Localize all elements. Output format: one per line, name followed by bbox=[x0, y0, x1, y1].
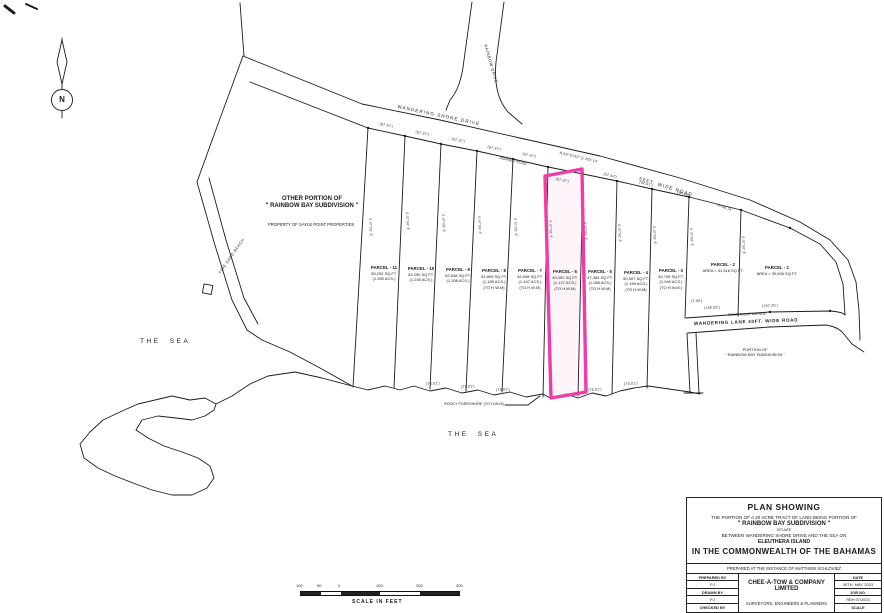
lane-dim: (7.09') bbox=[691, 299, 702, 303]
commonwealth-line: IN THE COMMONWEALTH OF THE BAHAMAS bbox=[687, 547, 881, 556]
scalebar-tick-label: 300 bbox=[456, 583, 463, 588]
the-sea-label-south: THE SEA bbox=[448, 431, 498, 438]
rear-dim: (75.01') bbox=[496, 387, 510, 392]
rear-dim: (75.01') bbox=[588, 387, 602, 392]
drawn-by-label: DRAWN BY bbox=[687, 589, 738, 596]
other-portion-line2: " RAINBOW BAY SUBDIVISION " bbox=[252, 203, 372, 210]
structure-square bbox=[202, 284, 212, 294]
credits-left-column: PREPARED BY P.J DRAWN BY P.J CHECKED BY bbox=[687, 574, 739, 612]
foreshore-leader-line bbox=[505, 396, 540, 405]
checked-by-label: CHECKED BY bbox=[687, 604, 738, 611]
company-subtitle: SURVEYORS, ENGINEERS & PLANNERS bbox=[739, 601, 834, 606]
west-boundary-line bbox=[197, 56, 243, 182]
north-arrow bbox=[52, 38, 73, 118]
company-name: CHEE-A-TOW & COMPANY LIMITED bbox=[739, 580, 834, 592]
scale-bar-segment bbox=[420, 592, 460, 595]
rear-dim: (75.01') bbox=[624, 381, 638, 386]
other-portion-label: OTHER PORTION OF " RAINBOW BAY SUBDIVISI… bbox=[252, 196, 372, 210]
bearing-label: S 07°08' E bbox=[476, 216, 481, 234]
parcel-1-label: PARCEL - 1 AREA = 30,506 SQ.FT. bbox=[744, 265, 810, 276]
scalebar-tick-label: 0 bbox=[338, 583, 340, 588]
scan-artifact bbox=[26, 4, 37, 9]
title-block-credits: PREPARED BY P.J DRAWN BY P.J CHECKED BY … bbox=[687, 574, 881, 612]
rear-dim: (75.01') bbox=[426, 381, 440, 386]
company-cell: CHEE-A-TOW & COMPANY LIMITED SURVEYORS, … bbox=[739, 574, 835, 612]
scan-artifact bbox=[5, 6, 14, 13]
scalebar-tick-label: 50 bbox=[317, 583, 321, 588]
lane-end-lot-lines bbox=[684, 333, 703, 393]
prepared-by-label: PREPARED BY bbox=[687, 574, 738, 581]
portion-of-line2: " RAINBOW BAY SUBDIVISION " bbox=[700, 353, 810, 358]
job-no-value: RBH 07/2023 bbox=[835, 596, 881, 603]
scale-bar-segment bbox=[341, 592, 381, 595]
date-label: DATE bbox=[835, 574, 881, 581]
portion-of-label: PORTION OF " RAINBOW BAY SUBDIVISION " bbox=[700, 348, 810, 357]
bearing-label: S 07°08' E bbox=[367, 218, 372, 236]
parcel-boundary bbox=[394, 136, 405, 388]
island-name: ELEUTHERA ISLAND bbox=[687, 539, 881, 545]
foreshore-label: ROCKY FORESHORE (TO H.W.M) bbox=[444, 402, 504, 406]
the-sea-label-west: THE SEA bbox=[140, 338, 190, 345]
bearing-label: S 07°08' E bbox=[547, 220, 552, 238]
lane-dim: (105.00') bbox=[704, 305, 720, 310]
scale-bar-segment bbox=[380, 592, 420, 595]
credits-right-column: DATE 30TH, MAY, 2023 JOB NO. RBH 07/2023… bbox=[835, 574, 881, 612]
bearing-label: S 07°08' E bbox=[616, 224, 621, 242]
bearing-label: S 07°08' E bbox=[651, 226, 656, 244]
coastline-west bbox=[247, 330, 352, 386]
parcel-boundary bbox=[353, 128, 368, 387]
rear-dim: (75.01') bbox=[461, 384, 475, 389]
prepared-by-value: P.J bbox=[687, 581, 738, 588]
bearing-label: S 07°08' E bbox=[512, 218, 517, 236]
bearing-label: S 07°08' E bbox=[582, 222, 587, 240]
boundary-tie-line bbox=[240, 3, 244, 56]
scale-label: SCALE bbox=[835, 604, 881, 611]
rocky-foreshore-line bbox=[352, 386, 700, 399]
scale-bar-segment bbox=[301, 592, 321, 595]
scale-bar-segment bbox=[321, 592, 341, 595]
parcel-boundary bbox=[685, 197, 689, 318]
other-portion-line1: OTHER PORTION OF bbox=[252, 196, 372, 203]
lane-dim: (157.25') bbox=[762, 303, 778, 308]
date-value: 30TH, MAY, 2023 bbox=[835, 581, 881, 588]
scale-caption: SCALE IN FEET bbox=[352, 600, 403, 606]
bearing-label: S 07°08' E bbox=[404, 212, 409, 230]
property-of-label: PROPERTY OF SAYLE POINT PROPERTIES bbox=[268, 223, 354, 228]
rainbow-drive-east-edge bbox=[496, 2, 523, 124]
plan-showing-title: PLAN SHOWING bbox=[687, 502, 881, 512]
beach-outer-line bbox=[197, 182, 247, 330]
title-block-heading: PLAN SHOWING THE PORTION OF A 20 ACRE TR… bbox=[687, 498, 881, 564]
rainbow-drive-west-edge bbox=[446, 2, 472, 110]
drawn-by-value: P.J bbox=[687, 596, 738, 603]
survey-plan-page: N WANDERING SHORE DRIVE ASPHALT ROAD 50F… bbox=[0, 0, 884, 613]
scalebar-tick-label: 200 bbox=[416, 583, 423, 588]
scalebar-tick-label: 100 bbox=[296, 583, 303, 588]
bearing-label: S 07°08' E bbox=[740, 236, 745, 254]
title-block: PLAN SHOWING THE PORTION OF A 20 ACRE TR… bbox=[686, 497, 882, 613]
scalebar-tick-label: 100 bbox=[376, 583, 383, 588]
north-arrow-label: N bbox=[57, 95, 68, 104]
coastline-to-pond bbox=[216, 372, 352, 404]
subdivision-name: " RAINBOW BAY SUBDIVISION " bbox=[687, 521, 881, 527]
prepared-instance-line: PREPARED AT THE INSTANCE OF MATTHEW SCHL… bbox=[687, 564, 881, 574]
scale-bar bbox=[300, 591, 460, 596]
pond-outline bbox=[80, 396, 216, 495]
bearing-label: S 07°08' E bbox=[440, 214, 445, 232]
bearing-label: S 07°08' E bbox=[688, 228, 693, 246]
job-no-label: JOB NO. bbox=[835, 589, 881, 596]
